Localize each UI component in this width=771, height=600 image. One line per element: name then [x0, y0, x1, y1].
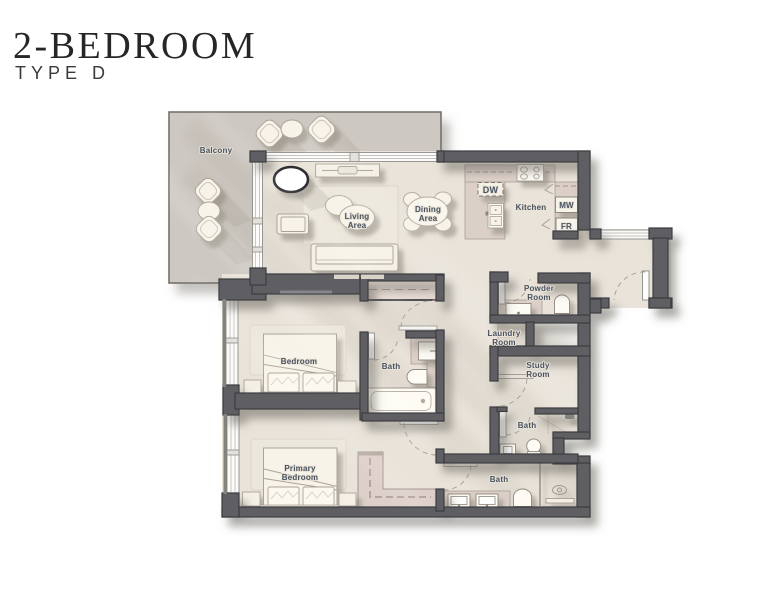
svg-text:Dining: Dining	[415, 205, 441, 214]
svg-text:2-BEDROOM: 2-BEDROOM	[13, 25, 257, 67]
svg-text:Laundry: Laundry	[488, 329, 521, 338]
svg-text:Living: Living	[345, 212, 370, 221]
svg-text:Room: Room	[527, 293, 550, 302]
svg-text:Bedroom: Bedroom	[282, 473, 319, 482]
svg-text:Primary: Primary	[284, 464, 316, 473]
svg-text:Bath: Bath	[490, 475, 509, 484]
svg-text:Study: Study	[526, 361, 550, 370]
svg-text:Kitchen: Kitchen	[516, 203, 547, 212]
svg-text:TYPE D: TYPE D	[15, 63, 110, 83]
svg-text:Bath: Bath	[382, 362, 401, 371]
svg-text:Bedroom: Bedroom	[281, 357, 318, 366]
svg-text:Room: Room	[492, 338, 515, 347]
svg-text:Area: Area	[348, 221, 367, 230]
svg-text:Area: Area	[419, 214, 438, 223]
svg-text:Powder: Powder	[524, 284, 554, 293]
svg-text:Balcony: Balcony	[200, 146, 233, 155]
svg-text:FR: FR	[561, 222, 572, 231]
svg-text:Room: Room	[526, 370, 549, 379]
svg-text:DW: DW	[483, 185, 499, 195]
svg-text:Bath: Bath	[518, 421, 537, 430]
svg-text:MW: MW	[559, 201, 574, 210]
